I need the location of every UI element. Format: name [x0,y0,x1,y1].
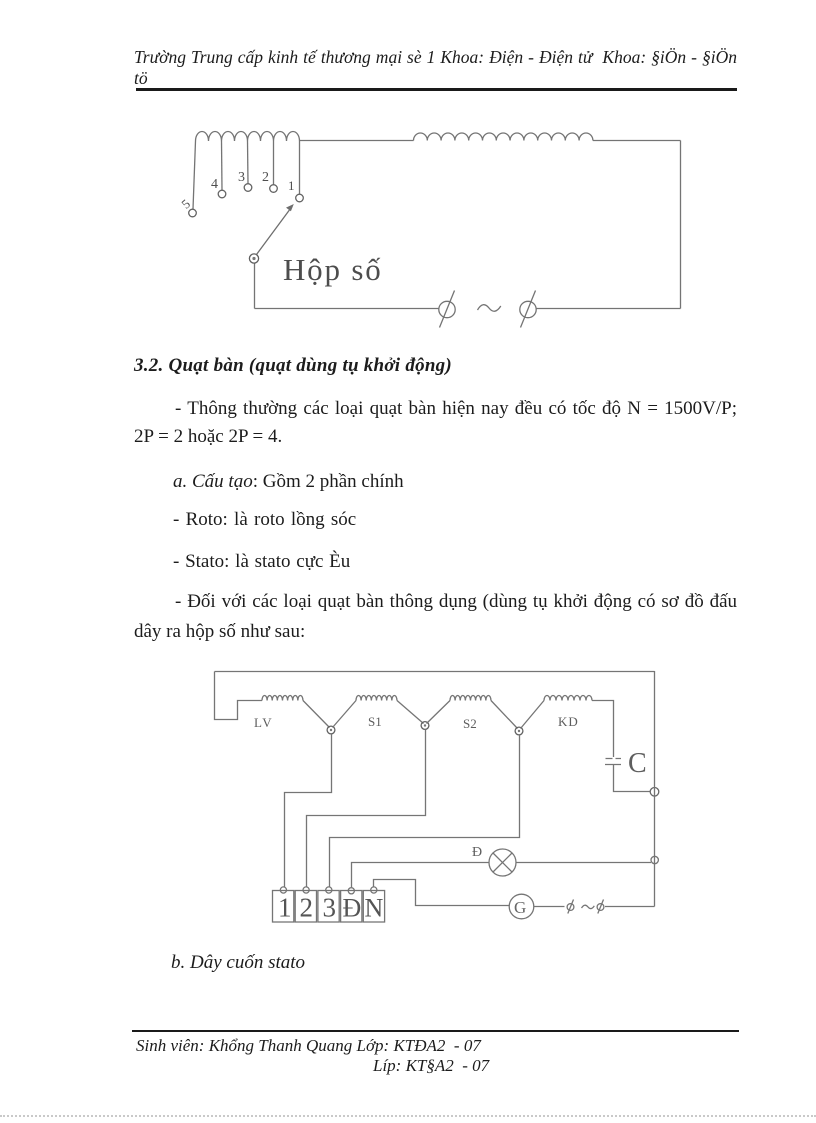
svg-text:5: 5 [178,196,193,212]
svg-text:KD: KD [558,714,579,729]
svg-text:2: 2 [262,170,269,185]
svg-text:3: 3 [238,170,245,185]
svg-text:LV: LV [254,715,273,730]
svg-text:1: 1 [278,893,292,923]
svg-text:3: 3 [323,893,337,923]
svg-text:2: 2 [300,893,314,923]
svg-text:S1: S1 [368,714,382,729]
svg-text:G: G [514,898,526,917]
svg-text:Đ: Đ [343,894,362,923]
svg-text:1: 1 [288,178,295,193]
svg-text:N: N [365,894,384,923]
svg-text:Hộp số: Hộp số [283,252,383,287]
svg-text:Đ: Đ [472,845,482,860]
svg-text:C: C [628,748,647,779]
svg-text:S2: S2 [463,716,477,731]
svg-text:4: 4 [211,177,218,192]
